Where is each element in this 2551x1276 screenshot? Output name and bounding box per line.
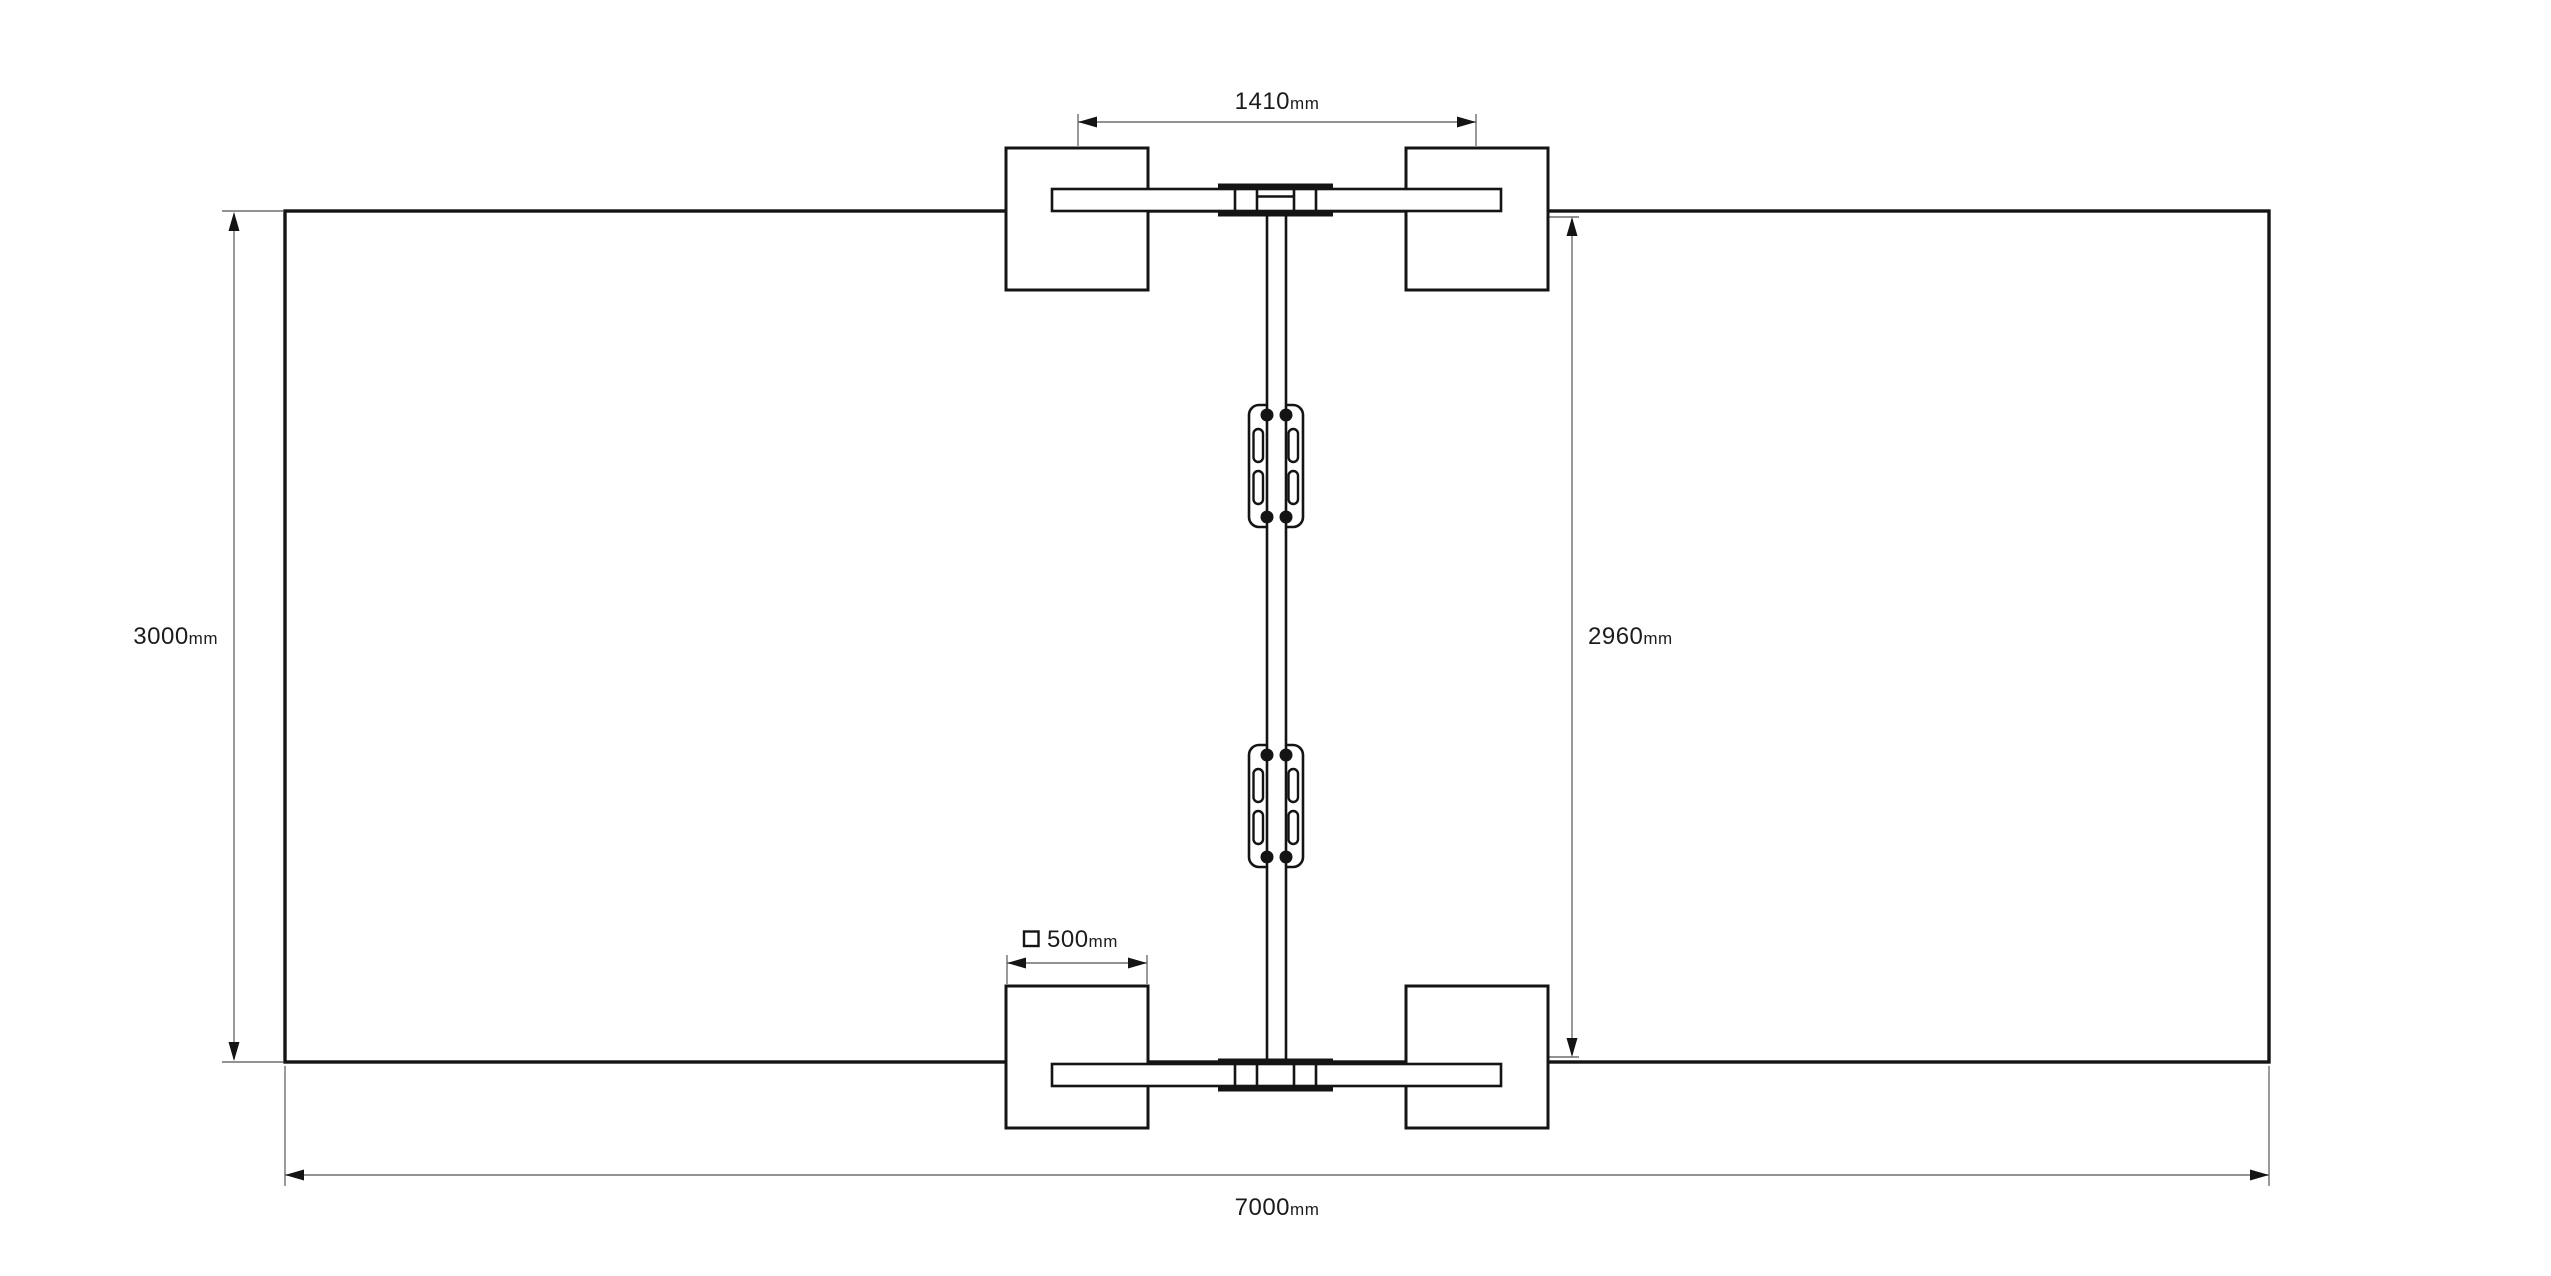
arrowhead-down-icon [229,1042,240,1061]
arrowhead-up-icon [229,212,240,231]
mounting-pad-top-right [1406,148,1548,290]
joint-plate-lower [1218,211,1333,217]
dimension-label: 3000mm [133,623,218,650]
top-crossbar-assembly [1052,184,1501,217]
bolt-dot [1261,511,1274,524]
bolt-slot [1254,429,1264,462]
center-beam [1267,216,1286,1059]
bolt-slot [1254,811,1264,844]
bolt-dot [1261,749,1274,762]
bolt-dot [1280,511,1293,524]
bolt-dot [1280,749,1293,762]
bolt-slot [1289,811,1299,844]
arrowhead-right-icon [2250,1170,2269,1181]
bottom-crossbar [1052,1064,1501,1086]
bolt-slot [1289,471,1299,504]
bolt-dot [1261,409,1274,422]
dimension-label: 1410mm [1235,88,1320,115]
bolt-slot [1254,471,1264,504]
bolt-dot [1280,409,1293,422]
mounting-pad-bottom-left [1006,986,1148,1128]
mounting-pad-bottom-right [1406,986,1548,1128]
joint-plate-upper [1218,1059,1333,1065]
top-crossbar [1052,189,1501,211]
technical-drawing-canvas: 3000mm 7000mm 2960mm 1410mm [0,0,2551,1276]
arrowhead-left-icon [1078,117,1097,128]
joint-plate-lower [1218,1086,1333,1092]
bolt-dot [1280,851,1293,864]
dimension-left-height: 3000mm [133,211,283,1062]
bolt-dot [1261,851,1274,864]
mounting-pad-top-left [1006,148,1148,290]
center-beam-body [1267,217,1286,1059]
bottom-crossbar-assembly [1052,1059,1501,1092]
bolt-slot [1289,429,1299,462]
bolt-slot [1254,769,1264,802]
bolt-slot [1289,769,1299,802]
arrowhead-right-icon [1457,117,1476,128]
dimension-top-width: 1410mm [1078,88,1476,146]
joint-plate-upper [1218,184,1333,190]
dimension-label: 7000mm [1235,1194,1320,1221]
arrowhead-left-icon [285,1170,304,1181]
